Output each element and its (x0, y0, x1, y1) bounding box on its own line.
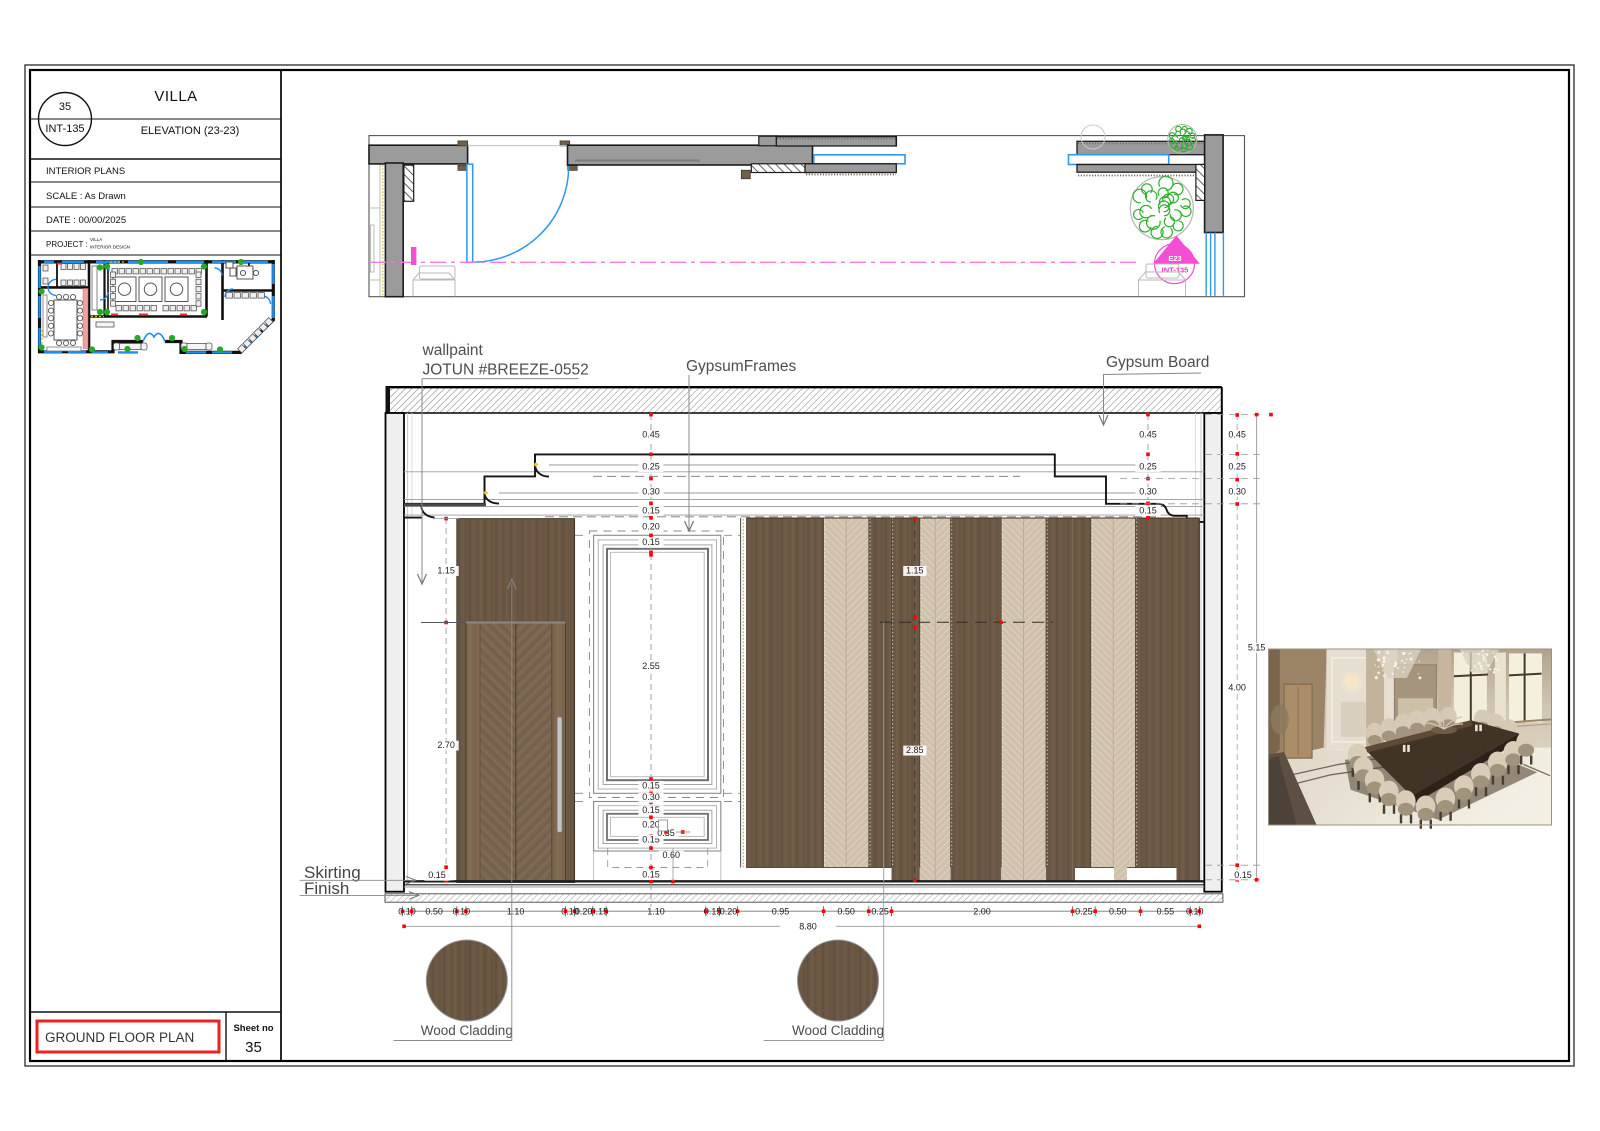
svg-text:VILLA: VILLA (90, 237, 102, 242)
svg-text:4.00: 4.00 (1228, 682, 1246, 692)
svg-text:0.45: 0.45 (1139, 430, 1157, 440)
svg-text:1.10: 1.10 (647, 906, 665, 916)
svg-text:0.15: 0.15 (642, 870, 660, 880)
svg-text:0.15: 0.15 (642, 780, 660, 790)
svg-text:2.85: 2.85 (906, 745, 924, 755)
svg-text:INTERIOR DESIGN: INTERIOR DESIGN (90, 245, 130, 250)
svg-text:wallpaint: wallpaint (422, 342, 484, 359)
svg-text:0.15: 0.15 (591, 906, 609, 916)
svg-text:0.50: 0.50 (1109, 906, 1127, 916)
svg-text:0.15: 0.15 (642, 805, 660, 815)
svg-text:1.15: 1.15 (906, 565, 924, 575)
svg-text:E23: E23 (1168, 254, 1181, 263)
svg-text:0.45: 0.45 (642, 430, 660, 440)
svg-text:2.70: 2.70 (437, 740, 455, 750)
svg-text:0.55: 0.55 (1157, 906, 1175, 916)
svg-text:0.25: 0.25 (1075, 906, 1093, 916)
svg-text:35: 35 (245, 1039, 262, 1056)
svg-text:PROJECT :: PROJECT : (46, 240, 88, 249)
svg-text:DATE : 00/00/2025: DATE : 00/00/2025 (46, 215, 126, 226)
svg-text:35: 35 (59, 101, 71, 113)
svg-text:0.50: 0.50 (425, 906, 443, 916)
svg-text:0.10: 0.10 (398, 906, 416, 916)
svg-text:Wood Cladding: Wood Cladding (792, 1023, 884, 1038)
svg-text:0.15: 0.15 (1234, 870, 1252, 880)
svg-text:0.25: 0.25 (642, 462, 660, 472)
svg-text:0.10: 0.10 (1186, 906, 1204, 916)
svg-text:0.25: 0.25 (871, 906, 889, 916)
svg-text:ELEVATION (23-23): ELEVATION (23-23) (141, 125, 240, 137)
svg-text:2.00: 2.00 (973, 906, 991, 916)
svg-text:5.15: 5.15 (1248, 642, 1266, 652)
svg-text:GypsumFrames: GypsumFrames (686, 358, 796, 375)
svg-text:Wood Cladding: Wood Cladding (421, 1023, 513, 1038)
svg-text:INT-135: INT-135 (1162, 266, 1189, 275)
svg-text:0.15: 0.15 (642, 505, 660, 515)
svg-text:0.50: 0.50 (837, 906, 855, 916)
svg-text:INTERIOR PLANS: INTERIOR PLANS (46, 166, 125, 177)
svg-text:VILLA: VILLA (154, 88, 197, 105)
svg-text:0.30: 0.30 (1228, 487, 1246, 497)
svg-text:0.30: 0.30 (642, 487, 660, 497)
svg-text:SCALE : As Drawn: SCALE : As Drawn (46, 191, 126, 202)
svg-text:0.15: 0.15 (642, 537, 660, 547)
svg-text:0.30: 0.30 (1139, 487, 1157, 497)
svg-text:1.10: 1.10 (507, 906, 525, 916)
svg-text:GROUND FLOOR PLAN: GROUND FLOOR PLAN (45, 1030, 194, 1045)
svg-text:JOTUN #BREEZE-0552: JOTUN #BREEZE-0552 (423, 362, 589, 379)
svg-text:0.10: 0.10 (453, 906, 471, 916)
svg-text:0.15: 0.15 (428, 870, 446, 880)
svg-text:Sheet no: Sheet no (233, 1023, 273, 1034)
svg-text:0.30: 0.30 (642, 792, 660, 802)
svg-text:INT-135: INT-135 (45, 123, 84, 135)
svg-text:0.25: 0.25 (1139, 462, 1157, 472)
svg-text:2.55: 2.55 (642, 661, 660, 671)
svg-text:0.20: 0.20 (720, 906, 738, 916)
svg-text:0.45: 0.45 (1228, 430, 1246, 440)
svg-text:1.15: 1.15 (437, 565, 455, 575)
svg-text:0.95: 0.95 (772, 906, 790, 916)
svg-text:0.60: 0.60 (663, 850, 681, 860)
svg-text:0.15: 0.15 (1139, 505, 1157, 515)
svg-text:0.25: 0.25 (1228, 462, 1246, 472)
svg-text:0.15: 0.15 (704, 906, 722, 916)
svg-text:8.80: 8.80 (799, 922, 817, 932)
svg-text:0.20: 0.20 (642, 522, 660, 532)
svg-text:Gypsum Board: Gypsum Board (1106, 354, 1209, 371)
